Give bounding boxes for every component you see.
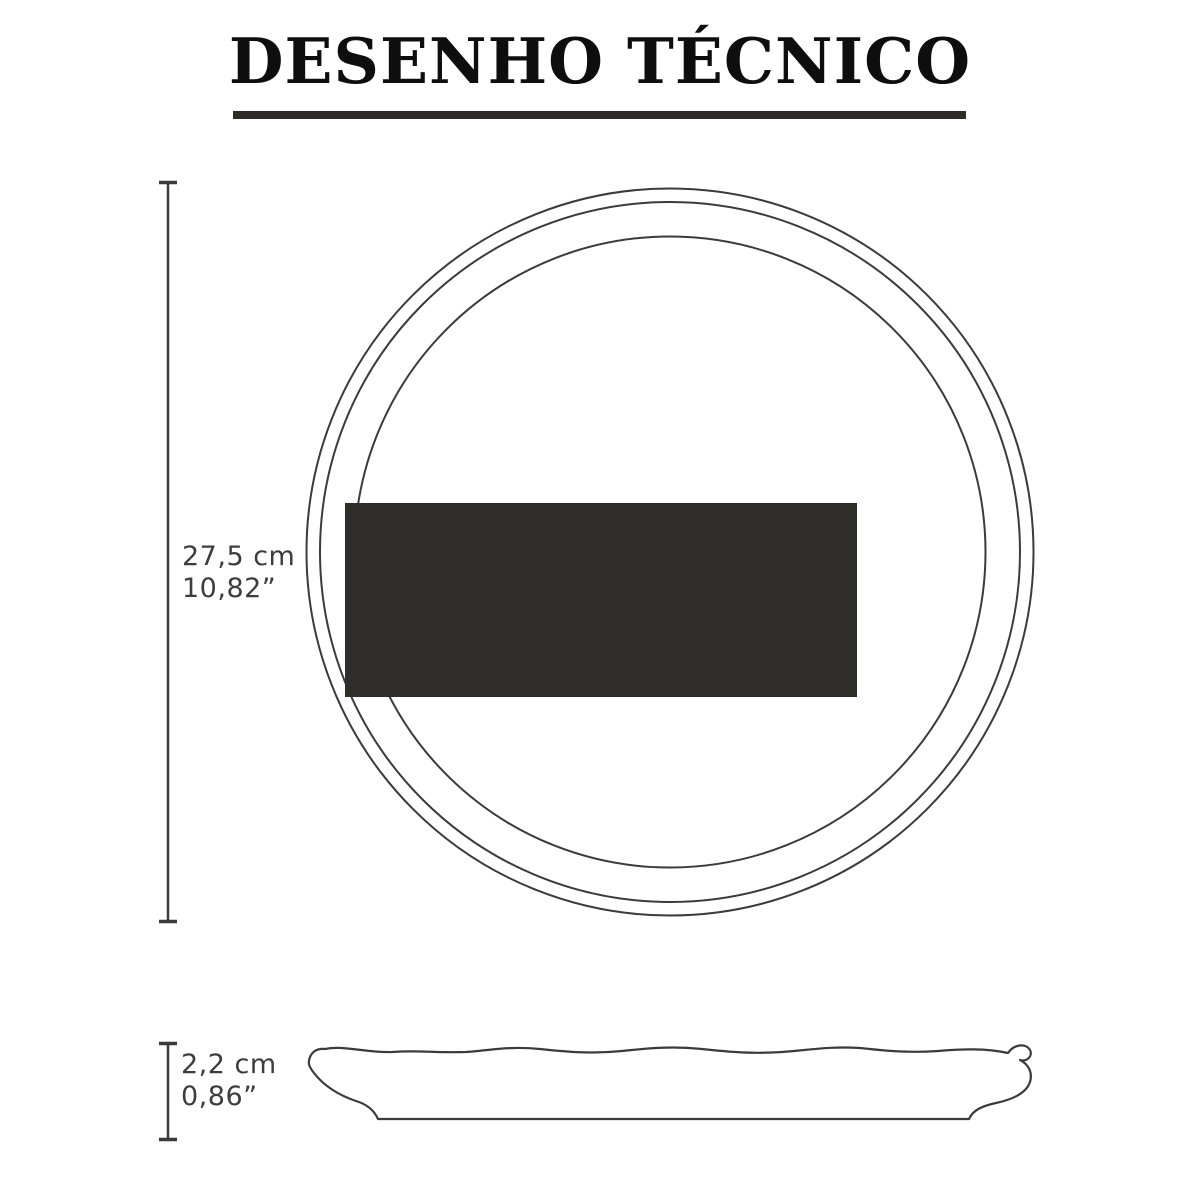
height-dimension-line-top-view bbox=[159, 182, 177, 922]
side-view-dimension-label: 2,2 cm 0,86” bbox=[181, 1049, 277, 1113]
plate-side-profile bbox=[309, 1045, 1031, 1119]
top-view-dimension-cm: 27,5 cm bbox=[182, 541, 295, 573]
top-view-dimension-label: 27,5 cm 10,82” bbox=[182, 541, 295, 605]
height-dimension-line-side-view bbox=[159, 1043, 177, 1140]
side-view-dimension-inches: 0,86” bbox=[181, 1081, 277, 1113]
drawing-canvas bbox=[0, 0, 1200, 1200]
top-view-dimension-inches: 10,82” bbox=[182, 573, 295, 605]
redaction-box bbox=[345, 503, 857, 697]
technical-drawing-page: DESENHO TÉCNICO 27,5 cm 10,82” bbox=[0, 0, 1200, 1200]
side-view-dimension-cm: 2,2 cm bbox=[181, 1049, 277, 1081]
